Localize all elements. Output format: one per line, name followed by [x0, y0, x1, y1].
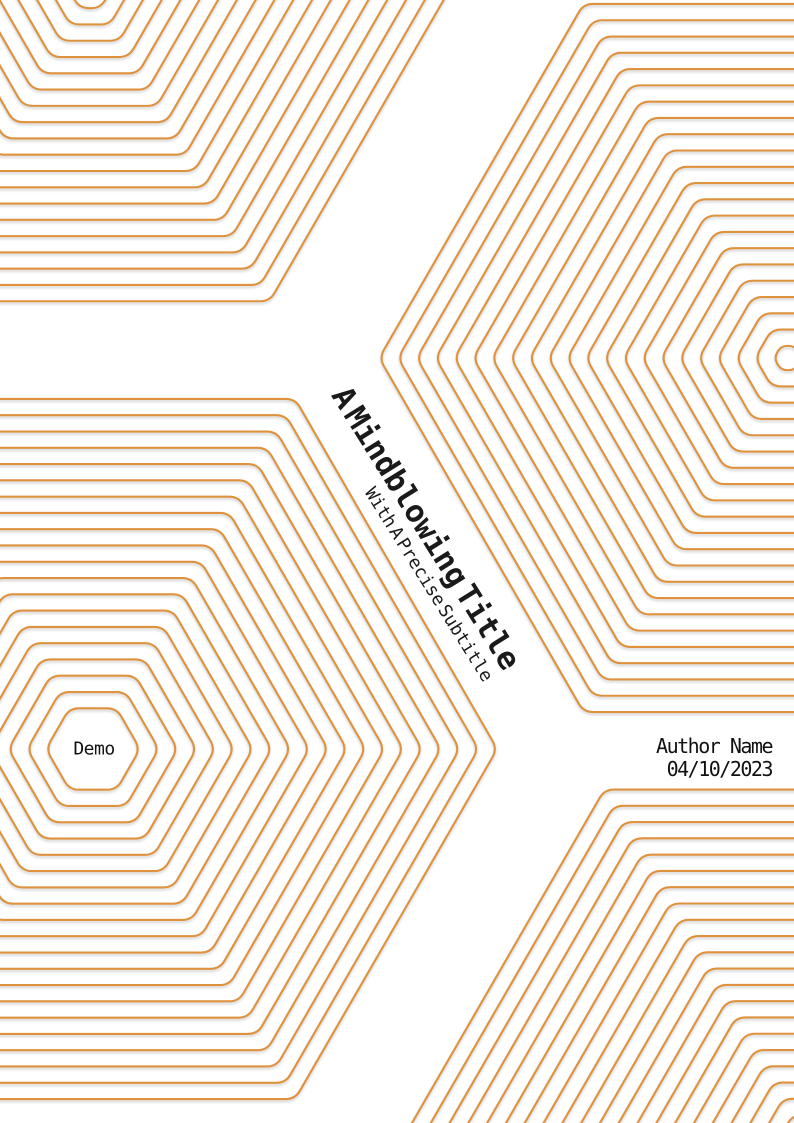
- hexagon-decoration: [0, 0, 794, 1123]
- author-block: Author Name 04/10/2023: [656, 735, 772, 781]
- hex-ring: [0, 448, 438, 1050]
- hex-ring: [34, 0, 146, 41]
- hex-ring: [0, 464, 420, 1034]
- hex-burst-bottom-right: [306, 790, 794, 1123]
- hex-ring: [682, 1115, 794, 1123]
- author-name: Author Name: [656, 735, 772, 758]
- hex-ring: [0, 0, 334, 204]
- hex-ring: [306, 790, 794, 1123]
- demo-badge: Demo: [73, 739, 114, 760]
- hex-ring: [0, 627, 232, 871]
- hex-ring: [0, 562, 307, 936]
- cover-page: { "page": { "width": 794, "height": 1123…: [0, 0, 794, 1123]
- hex-ring: [0, 0, 259, 138]
- hex-ring: [0, 578, 288, 920]
- publish-date: 04/10/2023: [656, 758, 772, 781]
- hex-ring: [739, 313, 794, 402]
- hex-ring: [588, 1034, 794, 1123]
- hex-ring: [513, 969, 794, 1123]
- hex-ring: [701, 281, 794, 436]
- hex-ring: [776, 346, 794, 370]
- hex-ring: [0, 0, 372, 236]
- hex-ring: [626, 216, 794, 501]
- hex-ring: [382, 855, 794, 1123]
- hex-burst-top-left: [0, 0, 447, 301]
- hex-ring: [53, 0, 128, 24]
- hex-ring: [419, 887, 794, 1123]
- hex-ring: [0, 0, 428, 285]
- hex-ring: [71, 0, 108, 8]
- hex-ring: [513, 118, 794, 598]
- hex-ring: [363, 838, 794, 1123]
- hex-ring: [0, 0, 315, 187]
